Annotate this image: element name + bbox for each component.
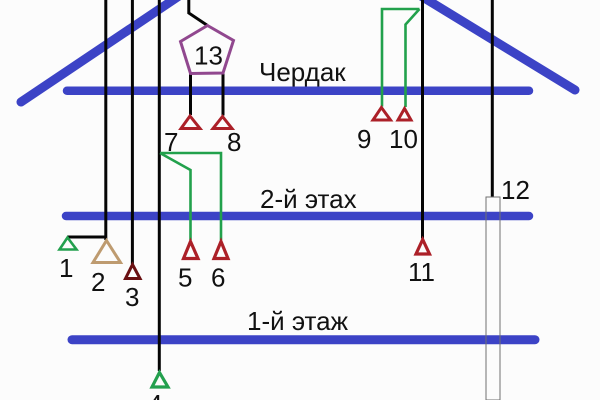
svg-text:Чердак: Чердак (259, 57, 346, 87)
svg-text:11: 11 (408, 257, 435, 287)
svg-text:5: 5 (178, 263, 192, 293)
svg-text:9: 9 (357, 124, 371, 154)
svg-text:1-й этаж: 1-й этаж (247, 306, 349, 336)
svg-text:7: 7 (164, 127, 178, 157)
svg-text:1: 1 (59, 253, 73, 283)
svg-text:8: 8 (227, 127, 241, 157)
svg-text:10: 10 (389, 124, 418, 154)
svg-text:3: 3 (125, 282, 139, 312)
svg-text:4: 4 (148, 389, 162, 400)
svg-text:2: 2 (91, 267, 105, 297)
svg-text:13: 13 (194, 41, 223, 71)
svg-text:2-й этах: 2-й этах (260, 184, 357, 214)
svg-text:12: 12 (501, 175, 530, 205)
svg-text:6: 6 (211, 263, 225, 293)
